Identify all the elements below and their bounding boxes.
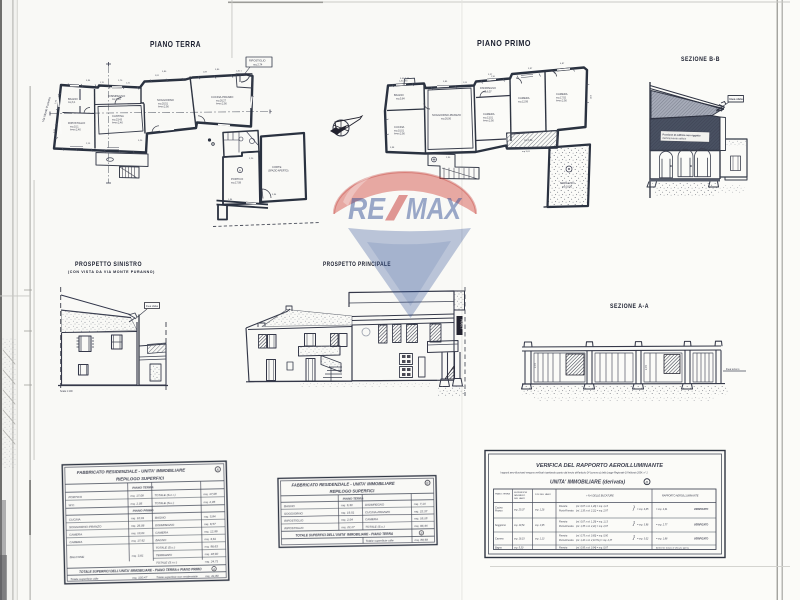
svg-text:mq 3,1: mq 3,1 (68, 101, 76, 104)
svg-text:mq 3,61: mq 3,61 (524, 139, 533, 142)
svg-text:(ml. 1,10 x ml. 2,10 Hm) = mq.: (ml. 1,10 x ml. 2,10 Hm) = mq. 2,37 (576, 540, 613, 542)
svg-text:CUCINA-PRANZO: CUCINA-PRANZO (365, 510, 391, 514)
svg-text:B: B (420, 531, 422, 535)
svg-text:dell'intervento edilizio: dell'intervento edilizio (662, 137, 686, 141)
svg-text:RE: RE (348, 191, 386, 226)
svg-text:PIANO TERRA: PIANO TERRA (150, 40, 201, 49)
svg-text:mq. 6,57: mq. 6,57 (204, 522, 216, 526)
svg-text:RAPPORTO AEROILLUMINANTE: RAPPORTO AEROILLUMINANTE (662, 495, 699, 498)
svg-text:Porta-Finestra: Porta-Finestra (559, 539, 574, 542)
svg-text:Soggiorno: Soggiorno (495, 524, 507, 527)
svg-text:mq. 17,92: mq. 17,92 (131, 539, 145, 543)
svg-text:TERRAZZO: TERRAZZO (560, 181, 574, 185)
svg-text:mq 26,06: mq 26,06 (441, 118, 452, 121)
svg-text:mq. 19,51: mq. 19,51 (341, 510, 355, 514)
svg-text:mq. 26,06: mq. 26,06 (131, 524, 145, 528)
svg-text:2,70: 2,70 (645, 365, 648, 370)
svg-text:h=mt 2,90: h=mt 2,90 (216, 103, 227, 106)
svg-text:Scala 1:100: Scala 1:100 (60, 390, 73, 393)
svg-text:BAGNO: BAGNO (155, 516, 167, 520)
svg-text:A: A (212, 567, 215, 571)
svg-text:RIPOSTIGLIO: RIPOSTIGLIO (284, 526, 304, 530)
svg-text:CANTINA: CANTINA (112, 114, 124, 118)
svg-text:BAGNO: BAGNO (155, 538, 167, 542)
svg-text:BAGNO: BAGNO (284, 504, 296, 508)
svg-text:mq. 22,37: mq. 22,37 (414, 509, 428, 513)
svg-text:PROSPETTO SINISTRO: PROSPETTO SINISTRO (75, 261, 142, 268)
svg-text:SOGGIORNO-PRANZO: SOGGIORNO-PRANZO (432, 113, 461, 117)
svg-text:mq 12,99: mq 12,99 (518, 101, 529, 104)
svg-text:PORTICO: PORTICO (231, 177, 243, 181)
svg-text:PORTICO: PORTICO (68, 495, 82, 499)
svg-text:UNITA' IMMOBILIARE (derivata): UNITA' IMMOBILIARE (derivata) (550, 480, 625, 486)
svg-text:mq. 2,05: mq. 2,05 (204, 500, 216, 504)
svg-text:Ambiente dotato di Umazio igie: Ambiente dotato di Umazio igienic (655, 547, 690, 550)
svg-text:mq 7,14: mq 7,14 (112, 98, 121, 101)
svg-text:mq 6,57: mq 6,57 (483, 91, 492, 94)
svg-text:= mq. 2,77: = mq. 2,77 (656, 524, 668, 527)
svg-text:mq. 100,47: mq. 100,47 (132, 575, 147, 579)
svg-text:mq. 25,37: mq. 25,37 (514, 509, 525, 512)
svg-text:mq. 17,08: mq. 17,08 (130, 494, 144, 498)
svg-text:(ml. 0,95 x ml. 0,94) = mq. 0,: (ml. 0,95 x ml. 0,94) = mq. 0,87 (576, 547, 609, 550)
svg-text:mq. 2,05: mq. 2,05 (131, 502, 143, 506)
svg-text:VERIFICATO: VERIFICATO (694, 538, 708, 541)
svg-text:= mq. 1,88: = mq. 1,88 (656, 538, 668, 541)
svg-text:SEZIONE B-B: SEZIONE B-B (681, 56, 720, 63)
svg-text:mq. 1,26: mq. 1,26 (535, 509, 545, 512)
svg-text:TOTALE (S.n.r.): TOTALE (S.n.r.) (156, 560, 177, 564)
svg-text:linea terreno: linea terreno (726, 368, 740, 371)
svg-text:Porta-Finestra: Porta-Finestra (559, 510, 574, 513)
svg-text:RIPOSTIGLIO: RIPOSTIGLIO (284, 519, 304, 523)
svg-text:BALCONE: BALCONE (70, 555, 85, 559)
svg-text:Finestra: Finestra (559, 505, 568, 508)
svg-text:Porta-Finestra: Porta-Finestra (559, 525, 574, 528)
svg-text:PAVIMENT.: PAVIMENT. (514, 494, 526, 497)
svg-text:CAMERA: CAMERA (69, 540, 82, 544)
svg-text:(ml. 1,35 x ml. 2,21) = mq. 2,: (ml. 1,35 x ml. 2,21) = mq. 2,97 (576, 526, 609, 528)
svg-text:h=mt 2,90: h=mt 2,90 (556, 100, 567, 103)
svg-text:CUCINA-PRANZO: CUCINA-PRANZO (211, 95, 233, 99)
svg-text:SUPERFICIE: SUPERFICIE (514, 492, 528, 494)
svg-text:mq. 24,71: mq. 24,71 (205, 559, 219, 563)
svg-text:mq. 19,51: mq. 19,51 (514, 524, 525, 527)
svg-text:mq. 2,04: mq. 2,04 (341, 518, 353, 522)
svg-text:PIANO PRIMO: PIANO PRIMO (477, 39, 531, 48)
svg-text:linea sfalsa: linea sfalsa (146, 305, 159, 308)
svg-text:Totale superficie utile: Totale superficie utile (366, 538, 394, 542)
svg-text:mq 3,61: mq 3,61 (522, 151, 531, 153)
svg-text:(SPAZIO APERTO): (SPAZIO APERTO) (268, 170, 289, 173)
svg-text:Finestra: Finestra (559, 521, 568, 524)
svg-text:CORTE: CORTE (272, 165, 282, 169)
svg-text:mq. 10,01: mq. 10,01 (131, 516, 145, 520)
svg-text:VERIFICATO: VERIFICATO (694, 508, 708, 511)
svg-text:REPILOGO SUPERFICI: REPILOGO SUPERFICI (330, 488, 376, 494)
svg-text:linea sfalsa: linea sfalsa (729, 97, 744, 101)
svg-text:mq. 16,18: mq. 16,18 (414, 516, 428, 520)
svg-text:mq. 5,84: mq. 5,84 (204, 514, 216, 518)
svg-text:Finestra: Finestra (559, 535, 568, 538)
svg-text:= mq. 2,41: = mq. 2,41 (656, 508, 668, 511)
svg-text:DISIMPEGNO: DISIMPEGNO (365, 503, 385, 507)
svg-text:h=mt 2,40: h=mt 2,40 (70, 129, 81, 132)
svg-text:mq. 5,30: mq. 5,30 (514, 547, 524, 550)
svg-text:mq. 96,63: mq. 96,63 (205, 544, 219, 548)
svg-text:RIPOSTIGLIO: RIPOSTIGLIO (68, 121, 85, 125)
svg-text:(ml. 0,67 x ml. 1,29) = mq. 1,: (ml. 0,67 x ml. 1,29) = mq. 1,13 (576, 506, 609, 508)
svg-text:PIANO TERRA: PIANO TERRA (132, 485, 154, 489)
svg-text:CAMERA: CAMERA (483, 112, 495, 116)
svg-text:(ml. 0,75 x ml. 0,80) = mq. 0,: (ml. 0,75 x ml. 0,80) = mq. 0,90 (576, 536, 609, 538)
svg-text:mq 18,90: mq 18,90 (562, 186, 573, 189)
svg-text:1,40 1: 1,40 1 (236, 71, 242, 73)
svg-text:(ml. 0,67 x ml. 1,29) = mq. 1,: (ml. 0,67 x ml. 1,29) = mq. 1,13 (576, 522, 609, 524)
svg-text:}: } (632, 521, 635, 527)
svg-text:h=mt 2,40: h=mt 2,40 (112, 122, 123, 125)
svg-text:= mq. 3,02: = mq. 3,02 (637, 538, 649, 541)
svg-text:}: } (632, 535, 635, 541)
svg-text:mq 17,08: mq 17,08 (231, 182, 242, 185)
svg-text:SOGGIORNO: SOGGIORNO (157, 98, 174, 102)
svg-text:= mq. 4,05: = mq. 4,05 (637, 508, 649, 511)
svg-text:TOTALE (S.u.): TOTALE (S.u.) (365, 525, 385, 529)
svg-text:Bagno: Bagno (495, 547, 503, 550)
svg-text:PIANO PRIMO: PIANO PRIMO (133, 508, 154, 512)
svg-text:Finestra: Finestra (559, 547, 568, 550)
svg-text:}: } (632, 506, 635, 512)
svg-text:PIANO TERRA: PIANO TERRA (495, 493, 510, 496)
svg-text:h=mt 2,90: h=mt 2,90 (158, 106, 169, 109)
svg-text:CAMERA: CAMERA (556, 92, 568, 96)
svg-text:1/10 DEL VANO: 1/10 DEL VANO (535, 493, 551, 496)
svg-text:PIANO TERRA: PIANO TERRA (343, 496, 364, 500)
svg-text:DISIMPEGNO: DISIMPEGNO (155, 523, 175, 527)
svg-text:CAMERA: CAMERA (69, 532, 82, 536)
svg-text:Totale superficie utile: Totale superficie utile (70, 577, 98, 582)
svg-text:mq 2,74: mq 2,74 (253, 63, 263, 67)
svg-text:mq 5,84: mq 5,84 (396, 98, 405, 101)
svg-text:Camera: Camera (495, 538, 504, 541)
svg-text:= mq. 3,96: = mq. 3,96 (637, 524, 649, 527)
svg-text:mq. 13,01: mq. 13,01 (131, 531, 145, 535)
svg-text:mq. 6,30: mq. 6,30 (341, 503, 353, 507)
svg-text:MAX: MAX (406, 191, 463, 226)
svg-text:mq. 66,44: mq. 66,44 (414, 524, 428, 528)
svg-text:mq. 16,15: mq. 16,15 (514, 538, 525, 541)
svg-text:VERIFICA DEL RAPPORTO AEROILLU: VERIFICA DEL RAPPORTO AEROILLUMINANTE (536, 463, 663, 469)
svg-text:SEZIONE A-A: SEZIONE A-A (610, 303, 649, 310)
svg-text:I rapporti aero-illuminanti ve: I rapporti aero-illuminanti vengono veri… (500, 472, 648, 475)
svg-text:CAMERA: CAMERA (365, 517, 378, 521)
svg-text:> N>I DELLE BUCATURE: > N>I DELLE BUCATURE (586, 495, 614, 498)
svg-text:CAMERA: CAMERA (518, 96, 530, 100)
svg-text:TOTALE (S.n.r.): TOTALE (S.n.r.) (154, 493, 175, 497)
svg-text:CUCINA: CUCINA (69, 517, 81, 521)
svg-text:SOGGIORNO: SOGGIORNO (284, 511, 304, 515)
svg-text:mq. 3,61: mq. 3,61 (204, 537, 216, 541)
svg-text:mq. 18,90: mq. 18,90 (205, 552, 219, 556)
svg-text:(ml. 1,35 x ml. 2,21) = mq. 2,: (ml. 1,35 x ml. 2,21) = mq. 2,97 (576, 511, 609, 513)
svg-text:SOGGIORNO-PRANZO: SOGGIORNO-PRANZO (69, 524, 102, 529)
svg-text:mq. 1,13: mq. 1,13 (535, 538, 545, 541)
svg-text:BAGNO: BAGNO (394, 93, 404, 97)
svg-text:h=mt 2,90: h=mt 2,90 (394, 133, 405, 136)
svg-text:1,40 3,83: 1,40 3,83 (399, 81, 408, 83)
svg-text:RIPOSTIGLIO: RIPOSTIGLIO (249, 59, 266, 63)
svg-text:mq. 7,14: mq. 7,14 (414, 502, 426, 506)
svg-text:VERIFICATO: VERIFICATO (694, 524, 708, 527)
svg-text:mq. 88,58: mq. 88,58 (414, 538, 428, 542)
svg-text:Pranzo: Pranzo (495, 510, 503, 513)
svg-text:TERRAZZO: TERRAZZO (156, 553, 173, 557)
svg-text:CAMERA: CAMERA (155, 530, 168, 534)
svg-text:TOTALE (S.u.): TOTALE (S.u.) (155, 501, 175, 505)
svg-text:mq. 12,99: mq. 12,99 (204, 529, 218, 533)
svg-text:DEL VANO: DEL VANO (514, 497, 525, 500)
svg-text:(CON VISTA DA VIA MONTE PURANN: (CON VISTA DA VIA MONTE PURANNO) (68, 270, 155, 274)
svg-text:mq. 41,80: mq. 41,80 (205, 574, 219, 578)
svg-text:A: A (239, 168, 241, 172)
svg-text:2,70: 2,70 (534, 363, 537, 368)
svg-text:PIAN.T: PIAN.T (460, 320, 464, 330)
svg-text:mq. 1,95: mq. 1,95 (535, 524, 545, 527)
svg-text:W.C.: W.C. (69, 503, 76, 507)
svg-text:CUCINA: CUCINA (394, 125, 405, 129)
svg-text:TOTALE (S.u.): TOTALE (S.u.) (156, 545, 176, 549)
svg-text:mq. 17,08: mq. 17,08 (203, 492, 217, 496)
svg-text:h=mt 2,90: h=mt 2,90 (483, 120, 494, 123)
svg-text:mq. 3,61: mq. 3,61 (132, 554, 144, 558)
svg-text:mq. 22,17: mq. 22,17 (341, 525, 355, 529)
